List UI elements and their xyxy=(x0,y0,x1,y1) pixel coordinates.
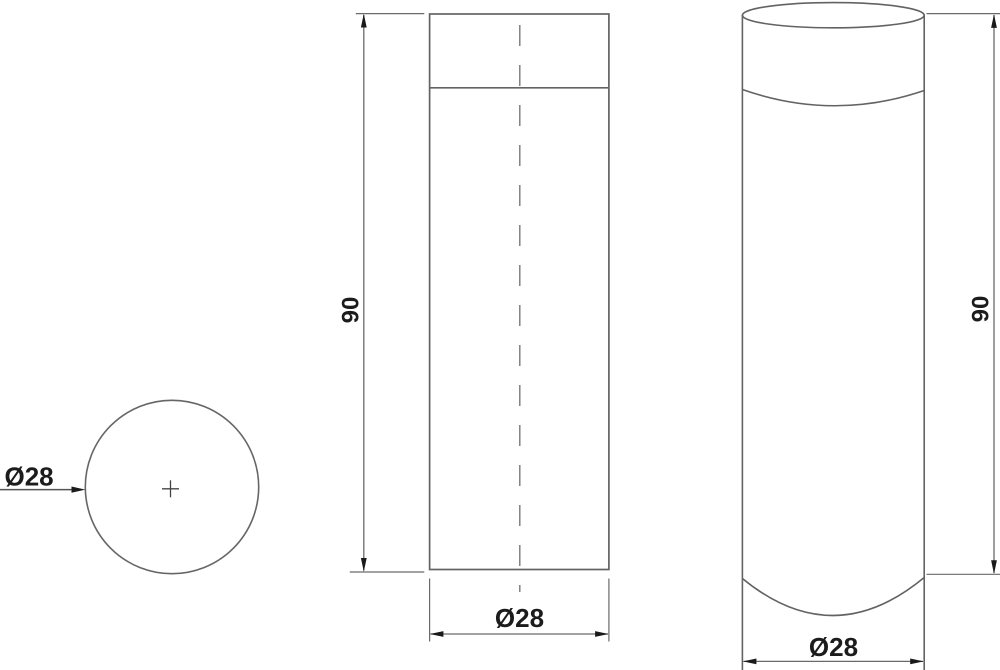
svg-text:Ø28: Ø28 xyxy=(495,603,544,633)
svg-text:90: 90 xyxy=(338,297,365,324)
svg-text:90: 90 xyxy=(968,296,995,323)
svg-text:Ø28: Ø28 xyxy=(809,632,858,662)
svg-text:Ø28: Ø28 xyxy=(5,462,54,492)
